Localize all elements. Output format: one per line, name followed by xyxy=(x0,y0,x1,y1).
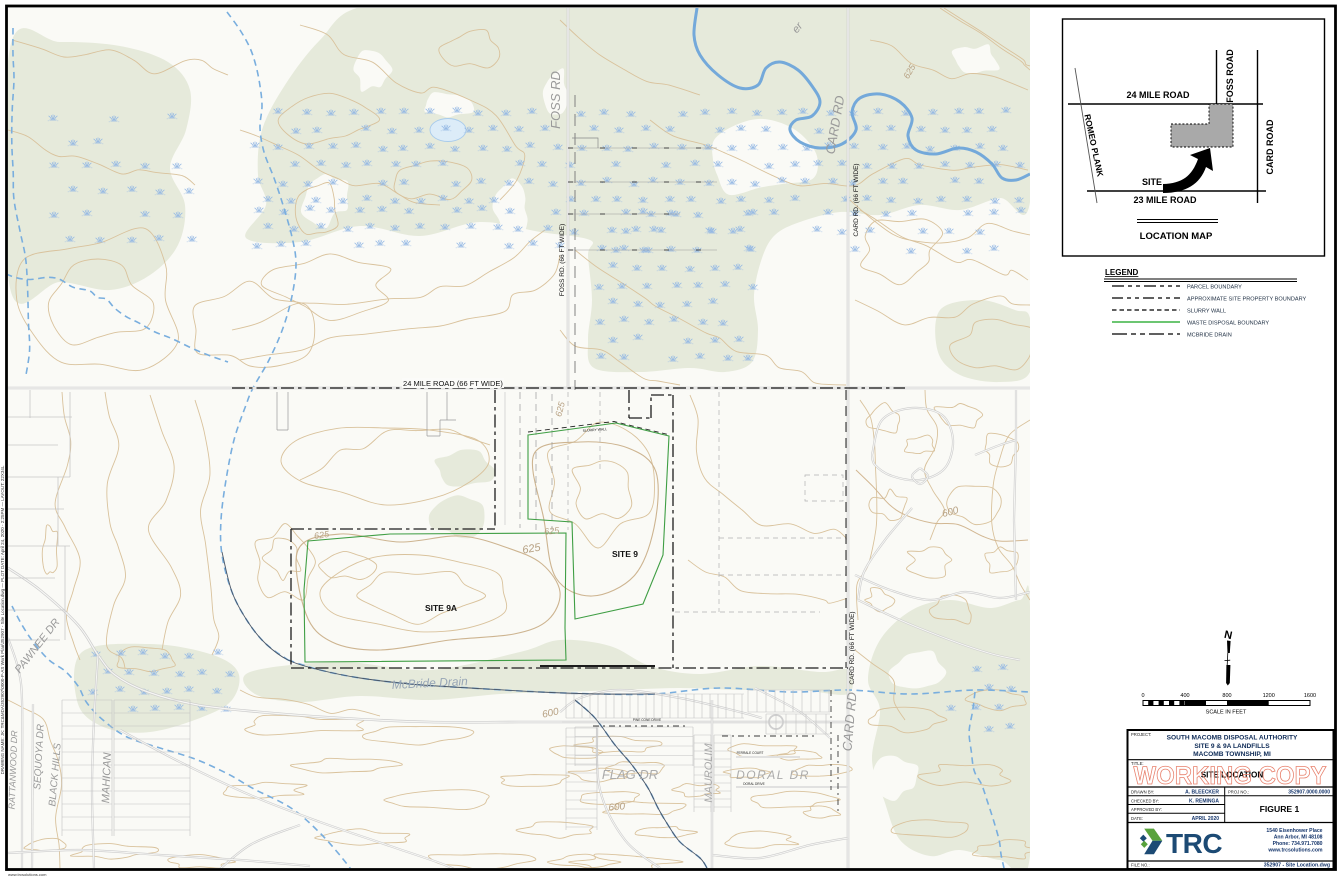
svg-text:CARD ROAD: CARD ROAD xyxy=(1265,119,1275,174)
svg-text:SLURRY WALL: SLURRY WALL xyxy=(1187,309,1226,315)
svg-text:Ann Arbor, MI 48108: Ann Arbor, MI 48108 xyxy=(1274,835,1323,841)
svg-text:CHECKED BY:: CHECKED BY: xyxy=(1131,798,1159,803)
svg-text:PARCEL BOUNDARY: PARCEL BOUNDARY xyxy=(1187,285,1242,291)
svg-text:A. BLEECKER: A. BLEECKER xyxy=(1185,790,1219,796)
svg-text:K. REMINGA: K. REMINGA xyxy=(1189,798,1219,804)
svg-text:23 MILE ROAD: 23 MILE ROAD xyxy=(1133,195,1197,205)
svg-text:1200: 1200 xyxy=(1263,693,1275,699)
svg-text:DATE:: DATE: xyxy=(1131,816,1143,821)
svg-text:FIGURE 1: FIGURE 1 xyxy=(1260,804,1300,814)
svg-text:SOUTH MACOMB DISPOSAL AUTHORIT: SOUTH MACOMB DISPOSAL AUTHORITY xyxy=(1167,735,1298,742)
svg-text:1600: 1600 xyxy=(1304,693,1316,699)
svg-text:352907.0000.0000: 352907.0000.0000 xyxy=(1288,790,1330,796)
svg-text:800: 800 xyxy=(1222,693,1231,699)
svg-text:FILE NO.:: FILE NO.: xyxy=(1131,863,1150,868)
svg-text:WASTE DISPOSAL BOUNDARY: WASTE DISPOSAL BOUNDARY xyxy=(1187,321,1269,327)
svg-text:APPROXIMATE SITE PROPERTY BOUN: APPROXIMATE SITE PROPERTY BOUNDARY xyxy=(1187,297,1307,303)
svg-text:MCBRIDE DRAIN: MCBRIDE DRAIN xyxy=(1187,333,1232,339)
svg-text:SITE: SITE xyxy=(1142,177,1162,187)
svg-text:FOSS ROAD: FOSS ROAD xyxy=(1225,49,1235,103)
svg-text:400: 400 xyxy=(1180,693,1189,699)
svg-text:PROJECT:: PROJECT: xyxy=(1131,732,1151,737)
svg-text:TRC: TRC xyxy=(1166,828,1222,859)
svg-text:APRIL 2020: APRIL 2020 xyxy=(1192,816,1220,822)
svg-text:24 MILE ROAD: 24 MILE ROAD xyxy=(1126,90,1190,100)
svg-text:1540 Eisenhower Place: 1540 Eisenhower Place xyxy=(1266,828,1322,834)
svg-text:0: 0 xyxy=(1141,693,1144,699)
svg-text:352907 - Site Location.dwg: 352907 - Site Location.dwg xyxy=(1264,863,1330,869)
svg-text:SITE 9 & 9A LANDFILLS: SITE 9 & 9A LANDFILLS xyxy=(1194,743,1270,750)
svg-text:SCALE IN FEET: SCALE IN FEET xyxy=(1206,710,1247,716)
svg-text:LOCATION MAP: LOCATION MAP xyxy=(1140,231,1213,242)
svg-text:APPROVED BY:: APPROVED BY: xyxy=(1131,807,1162,812)
svg-text:www.trcsolutions.com: www.trcsolutions.com xyxy=(8,872,47,877)
svg-text:DRAWING NAME: JK: TRC&MDA\3529: DRAWING NAME: JK: TRC&MDA\352907\0000-P-… xyxy=(0,465,5,774)
svg-text:Phone: 734.971.7080: Phone: 734.971.7080 xyxy=(1273,841,1323,847)
svg-text:www.trcsolutions.com: www.trcsolutions.com xyxy=(1267,848,1323,854)
svg-text:WORKING COPY: WORKING COPY xyxy=(1134,762,1327,790)
svg-text:DRAWN BY:: DRAWN BY: xyxy=(1131,790,1154,795)
svg-text:MACOMB TOWNSHIP, MI: MACOMB TOWNSHIP, MI xyxy=(1193,751,1271,758)
svg-text:LEGEND: LEGEND xyxy=(1105,268,1139,277)
svg-text:PROJ NO.:: PROJ NO.: xyxy=(1228,790,1249,795)
